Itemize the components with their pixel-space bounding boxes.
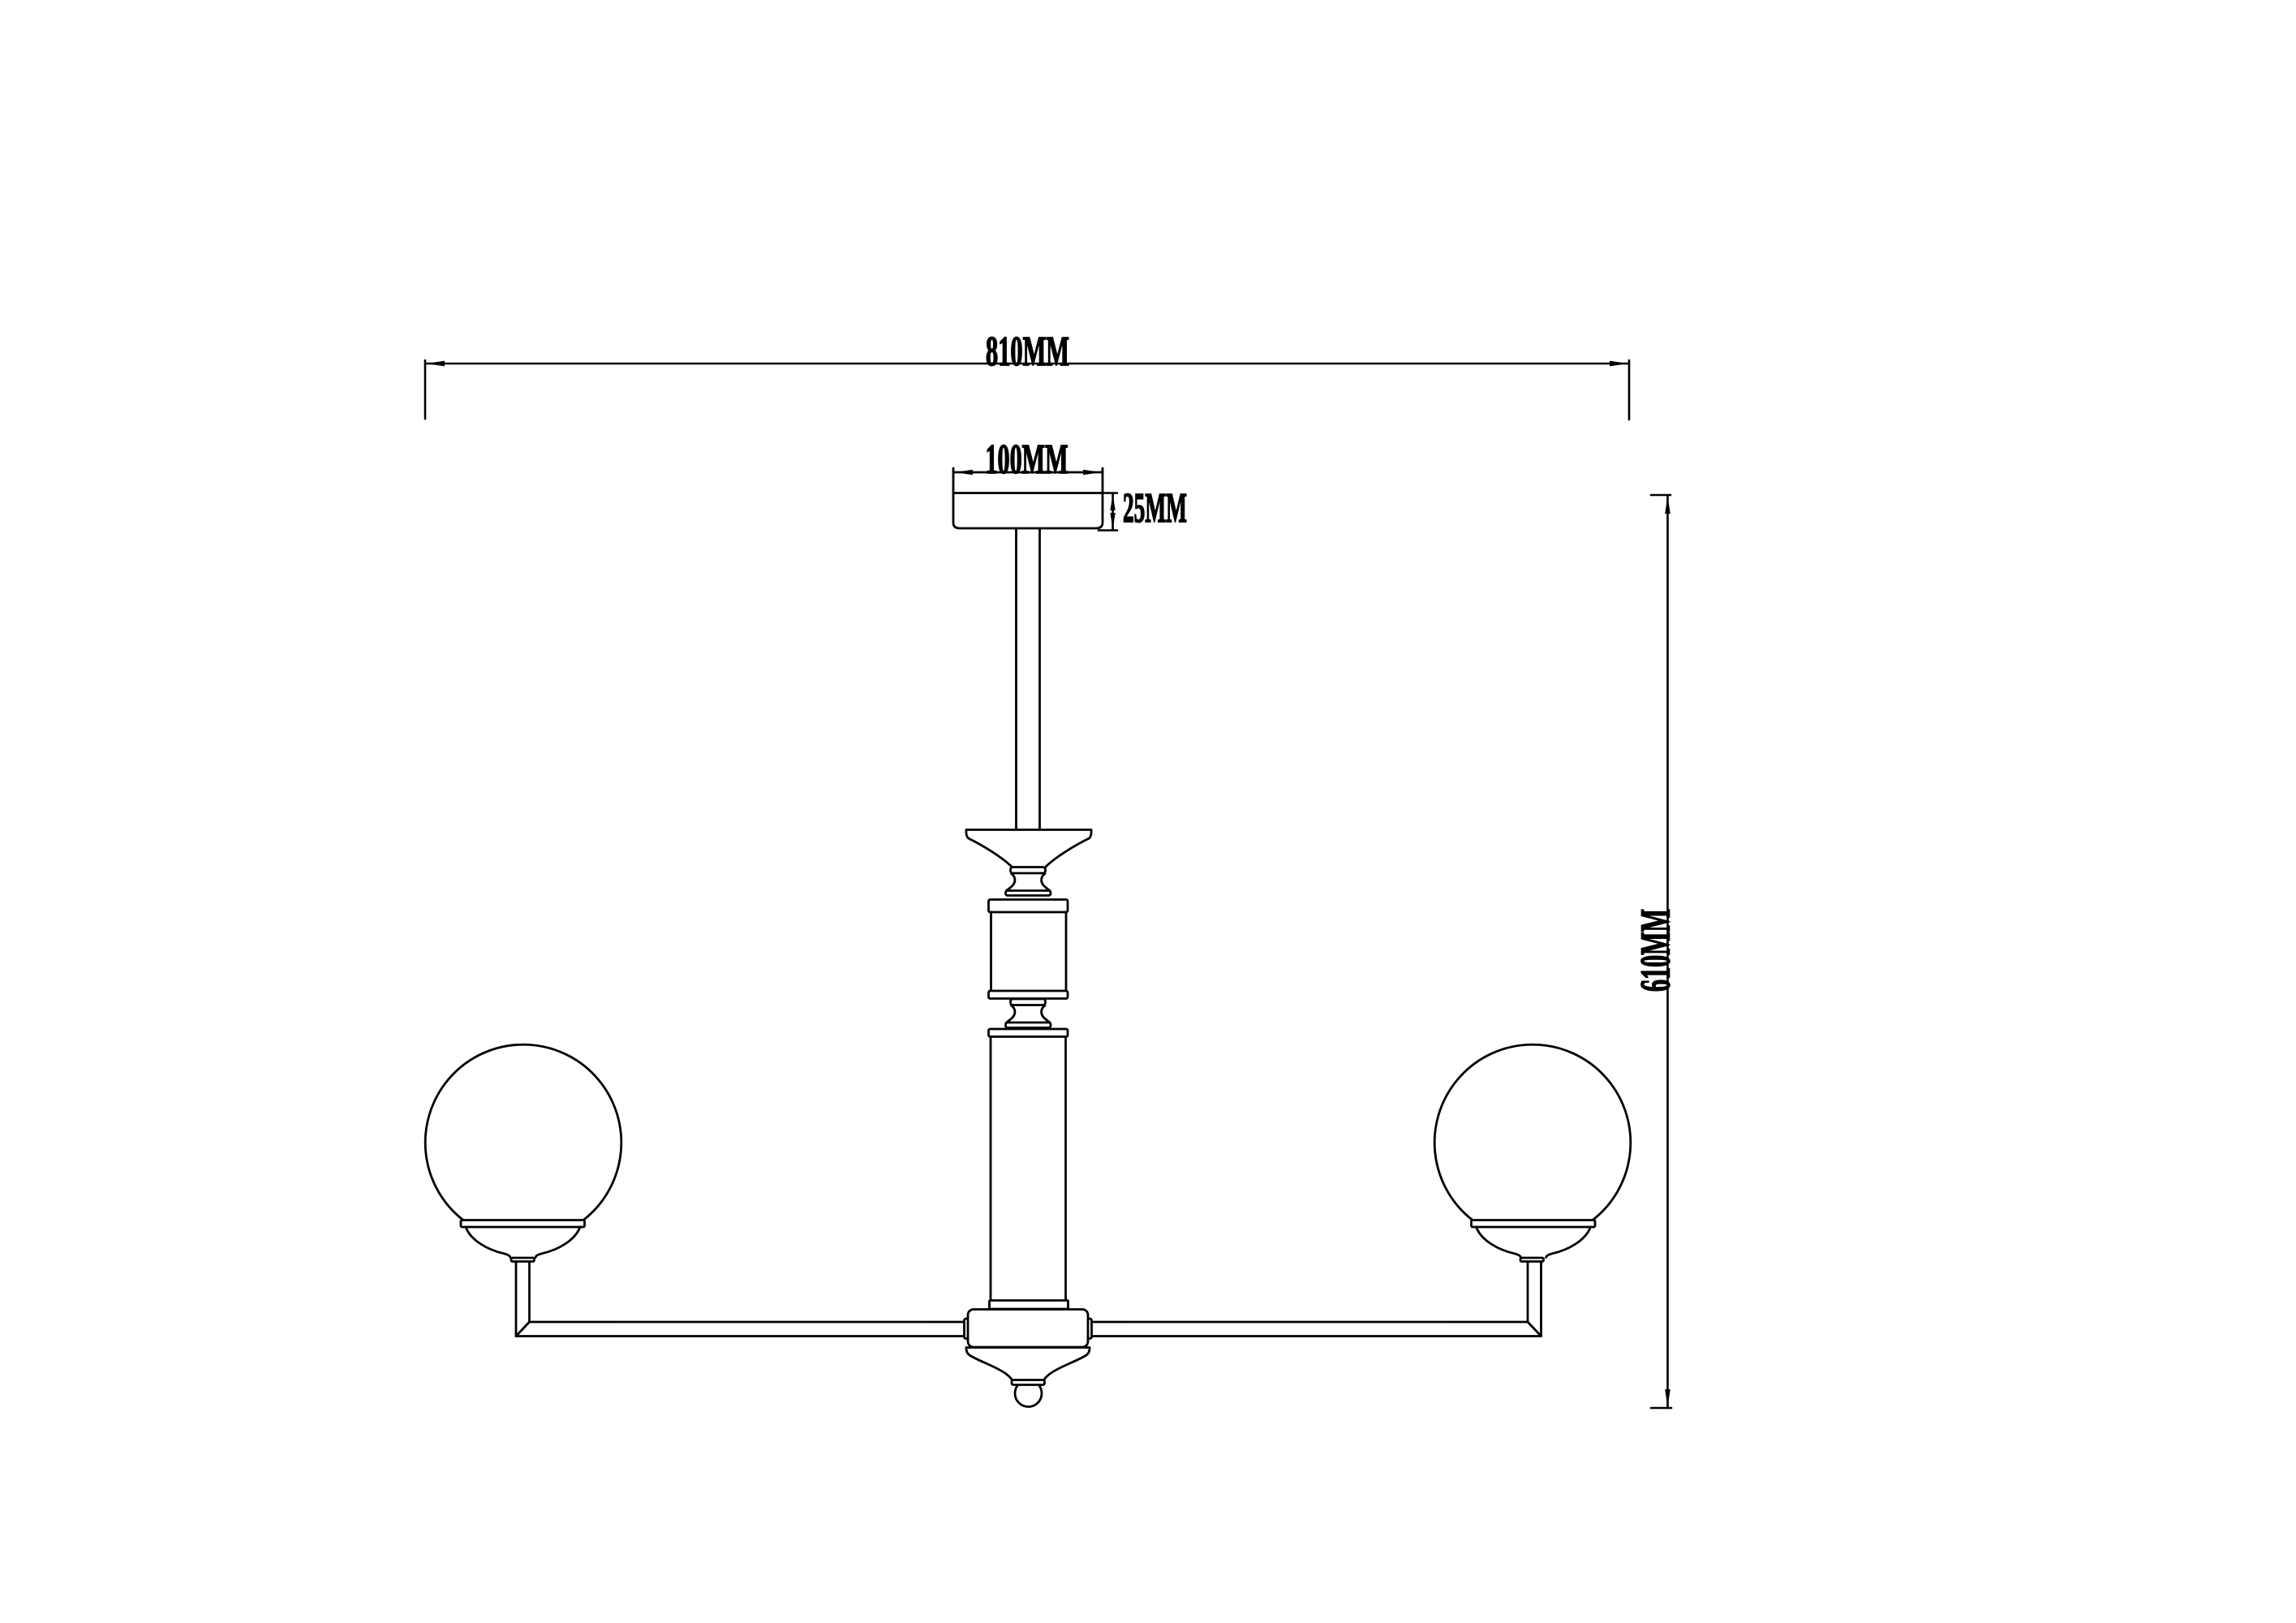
svg-text:25MM: 25MM xyxy=(1123,485,1187,532)
svg-text:100MM: 100MM xyxy=(986,437,1068,483)
svg-text:810MM: 810MM xyxy=(986,329,1069,375)
svg-text:610MM: 610MM xyxy=(1633,909,1679,992)
